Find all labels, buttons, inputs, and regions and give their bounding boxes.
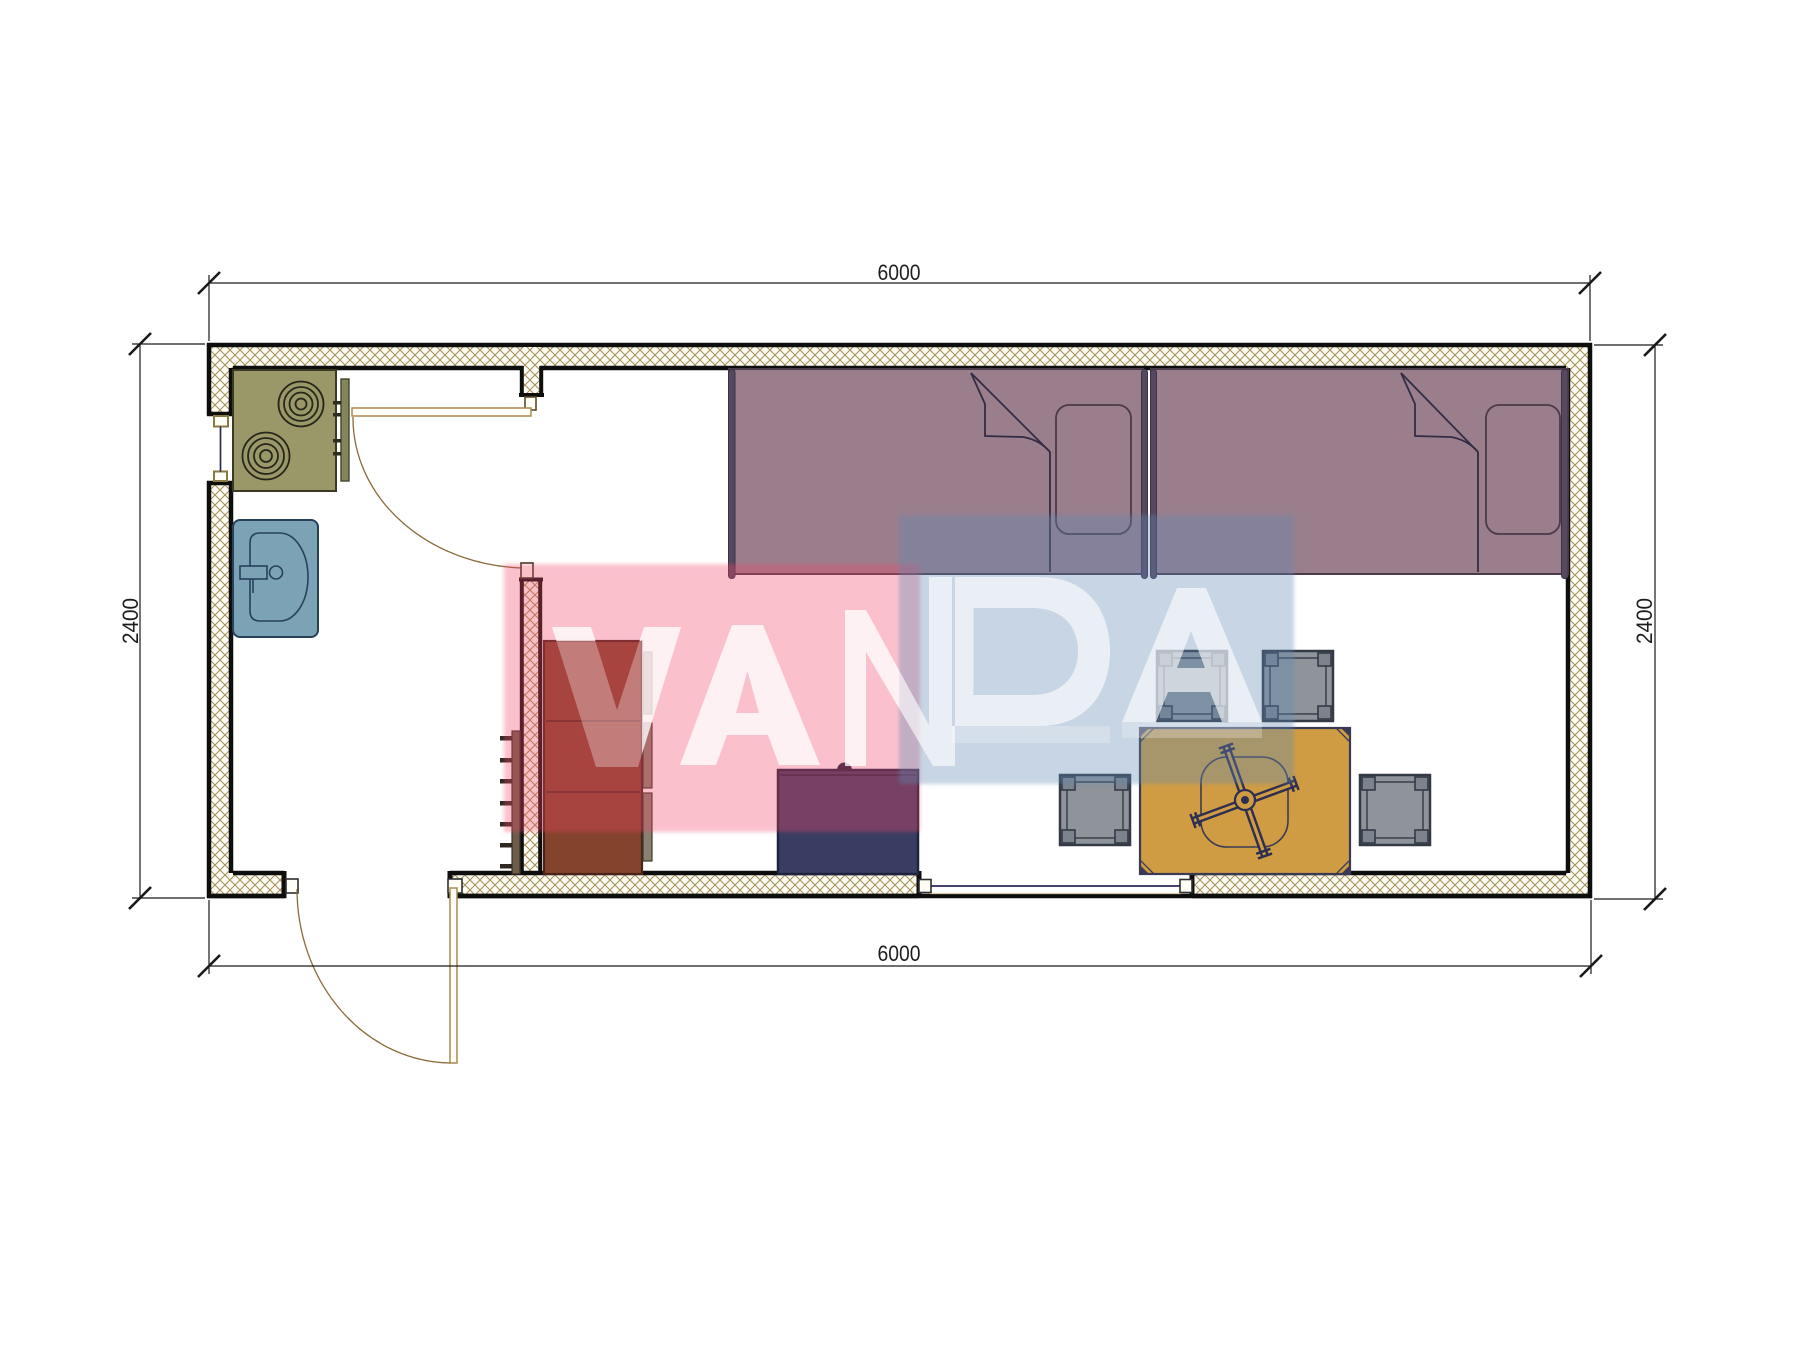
svg-text:6000: 6000 <box>878 260 921 285</box>
svg-text:2400: 2400 <box>1632 598 1657 644</box>
svg-text:6000: 6000 <box>878 941 921 966</box>
svg-text:2400: 2400 <box>118 598 143 644</box>
